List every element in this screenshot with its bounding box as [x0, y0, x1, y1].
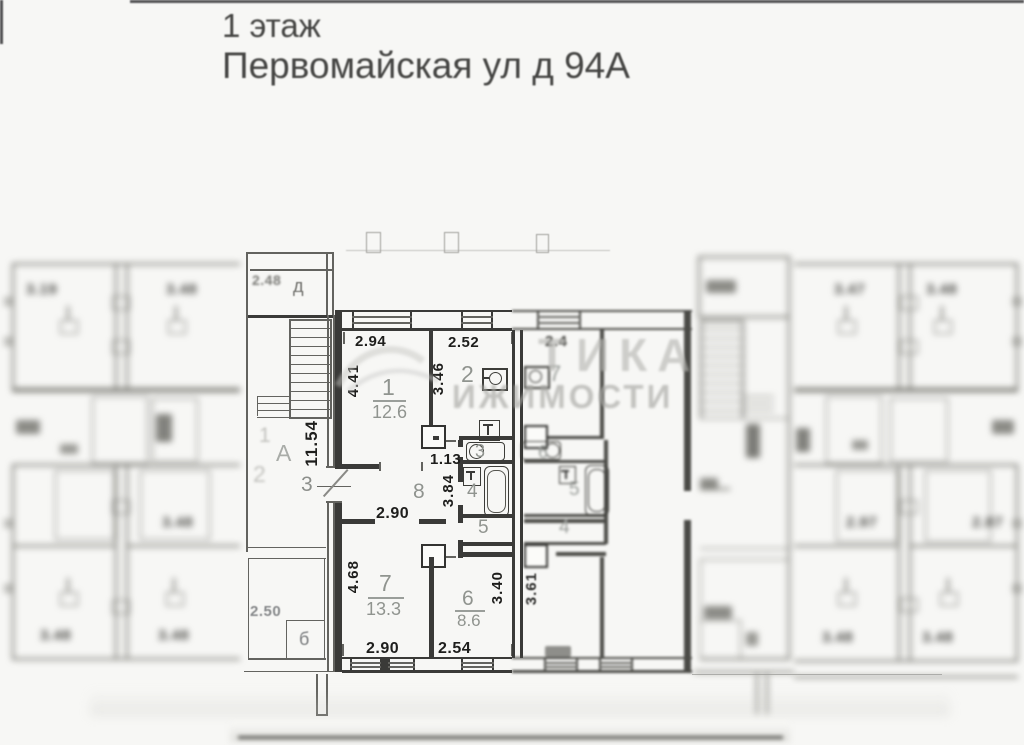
watermark-text-1: ТИКА: [538, 328, 700, 382]
watermark-swoosh-icon: [328, 336, 448, 396]
floor-title: 1 этаж: [222, 8, 630, 44]
plan-title: 1 этаж Первомайская ул д 94А: [222, 8, 630, 89]
scan-line-bottom: [238, 736, 783, 739]
address-title: Первомайская ул д 94А: [222, 44, 630, 88]
floor-plan: 3.19 3.48 3.48 3.48: [0, 0, 1024, 745]
scanned-floor-plan-page: 1 этаж Первомайская ул д 94А 3.19 3.48: [0, 0, 1024, 745]
scan-smudge: [90, 690, 950, 716]
watermark: ТИКА ИЖИМОСТИ: [0, 0, 1024, 745]
watermark-text-2: ИЖИМОСТИ: [452, 378, 673, 416]
scan-band-bottom: [230, 722, 790, 742]
